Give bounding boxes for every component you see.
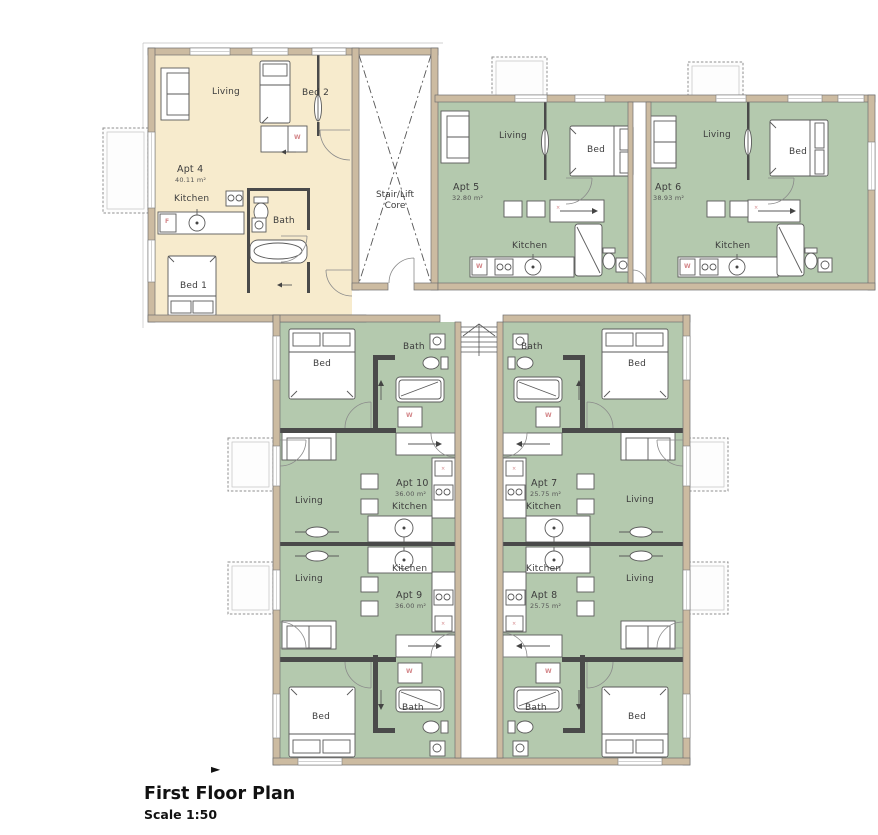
stairs-icon (461, 324, 497, 356)
apt9-bed-label: Bed (312, 712, 330, 722)
apt9-name-label: Apt 9 (396, 590, 422, 601)
apt6-living-label: Living (703, 130, 731, 140)
apt8-name-label: Apt 8 (531, 590, 557, 601)
apt7-kitchen-label: Kitchen (526, 502, 561, 512)
apt5-living-label: Living (499, 131, 527, 141)
apt7-living-label: Living (626, 495, 654, 505)
apt10-name-label: Apt 10 (396, 478, 429, 489)
washer-mark: W (545, 668, 552, 675)
unit-mark: × (754, 205, 758, 211)
apt6-name-label: Apt 6 (655, 182, 681, 193)
apt10-bath-label: Bath (403, 342, 425, 352)
apt10-area-label: 36.00 m² (395, 490, 426, 498)
unit-mark: × (441, 466, 445, 472)
apt6-bed-label: Bed (789, 147, 807, 157)
washer-mark: W (406, 668, 413, 675)
apt6-area-label: 38.93 m² (653, 194, 684, 202)
apt10-living-label: Living (295, 496, 323, 506)
unit-mark: × (556, 205, 560, 211)
unit-mark: × (512, 466, 516, 472)
apt8-area-label: 25.75 m² (530, 602, 561, 610)
arrow-marker: ► (211, 762, 220, 776)
apt6-kitchen-label: Kitchen (715, 241, 750, 251)
apt8-bath-label: Bath (525, 703, 547, 713)
apt8-living-label: Living (626, 574, 654, 584)
apt7-area-label: 25.75 m² (530, 490, 561, 498)
plan-title: First Floor Plan (144, 784, 295, 804)
washer-mark: W (476, 263, 483, 270)
washer-mark: W (684, 263, 691, 270)
washer-mark: W (406, 412, 413, 419)
floor-plan-drawing (0, 0, 878, 835)
apt4-kitchen-label: Kitchen (174, 194, 209, 204)
apt5-kitchen-label: Kitchen (512, 241, 547, 251)
apt7-bath-label: Bath (521, 342, 543, 352)
apt7-name-label: Apt 7 (531, 478, 557, 489)
apt5-name-label: Apt 5 (453, 182, 479, 193)
apt4-bath-label: Bath (273, 216, 295, 226)
apt4-bed1-label: Bed 1 (180, 281, 207, 291)
stair-lift-core-label: Stair/LiftCore (362, 190, 428, 212)
apt10-kitchen-label: Kitchen (392, 502, 427, 512)
apt9-living-label: Living (295, 574, 323, 584)
floor-plan: Living Bed 2 Apt 4 40.11 m² Kitchen Bath… (0, 0, 878, 835)
apt5-area-label: 32.80 m² (452, 194, 483, 202)
apt9-area-label: 36.00 m² (395, 602, 426, 610)
apt4-bed2-label: Bed 2 (302, 88, 329, 98)
apt10-bed-label: Bed (313, 359, 331, 369)
apt7-bed-label: Bed (628, 359, 646, 369)
plan-scale: Scale 1:50 (144, 807, 217, 822)
fridge-mark: F (165, 218, 169, 225)
apt4-area-label: 40.11 m² (175, 176, 206, 184)
apt9-kitchen-label: Kitchen (392, 564, 427, 574)
stair-core-cross (359, 55, 431, 283)
apt4-living-label: Living (212, 87, 240, 97)
unit-mark: × (512, 621, 516, 627)
washer-mark: W (545, 412, 552, 419)
washer-mark: W (294, 134, 301, 141)
apt9-bath-label: Bath (402, 703, 424, 713)
apt8-kitchen-label: Kitchen (526, 564, 561, 574)
apt8-bed-label: Bed (628, 712, 646, 722)
apt5-bed-label: Bed (587, 145, 605, 155)
unit-mark: × (441, 621, 445, 627)
apt4-name-label: Apt 4 (177, 164, 203, 175)
